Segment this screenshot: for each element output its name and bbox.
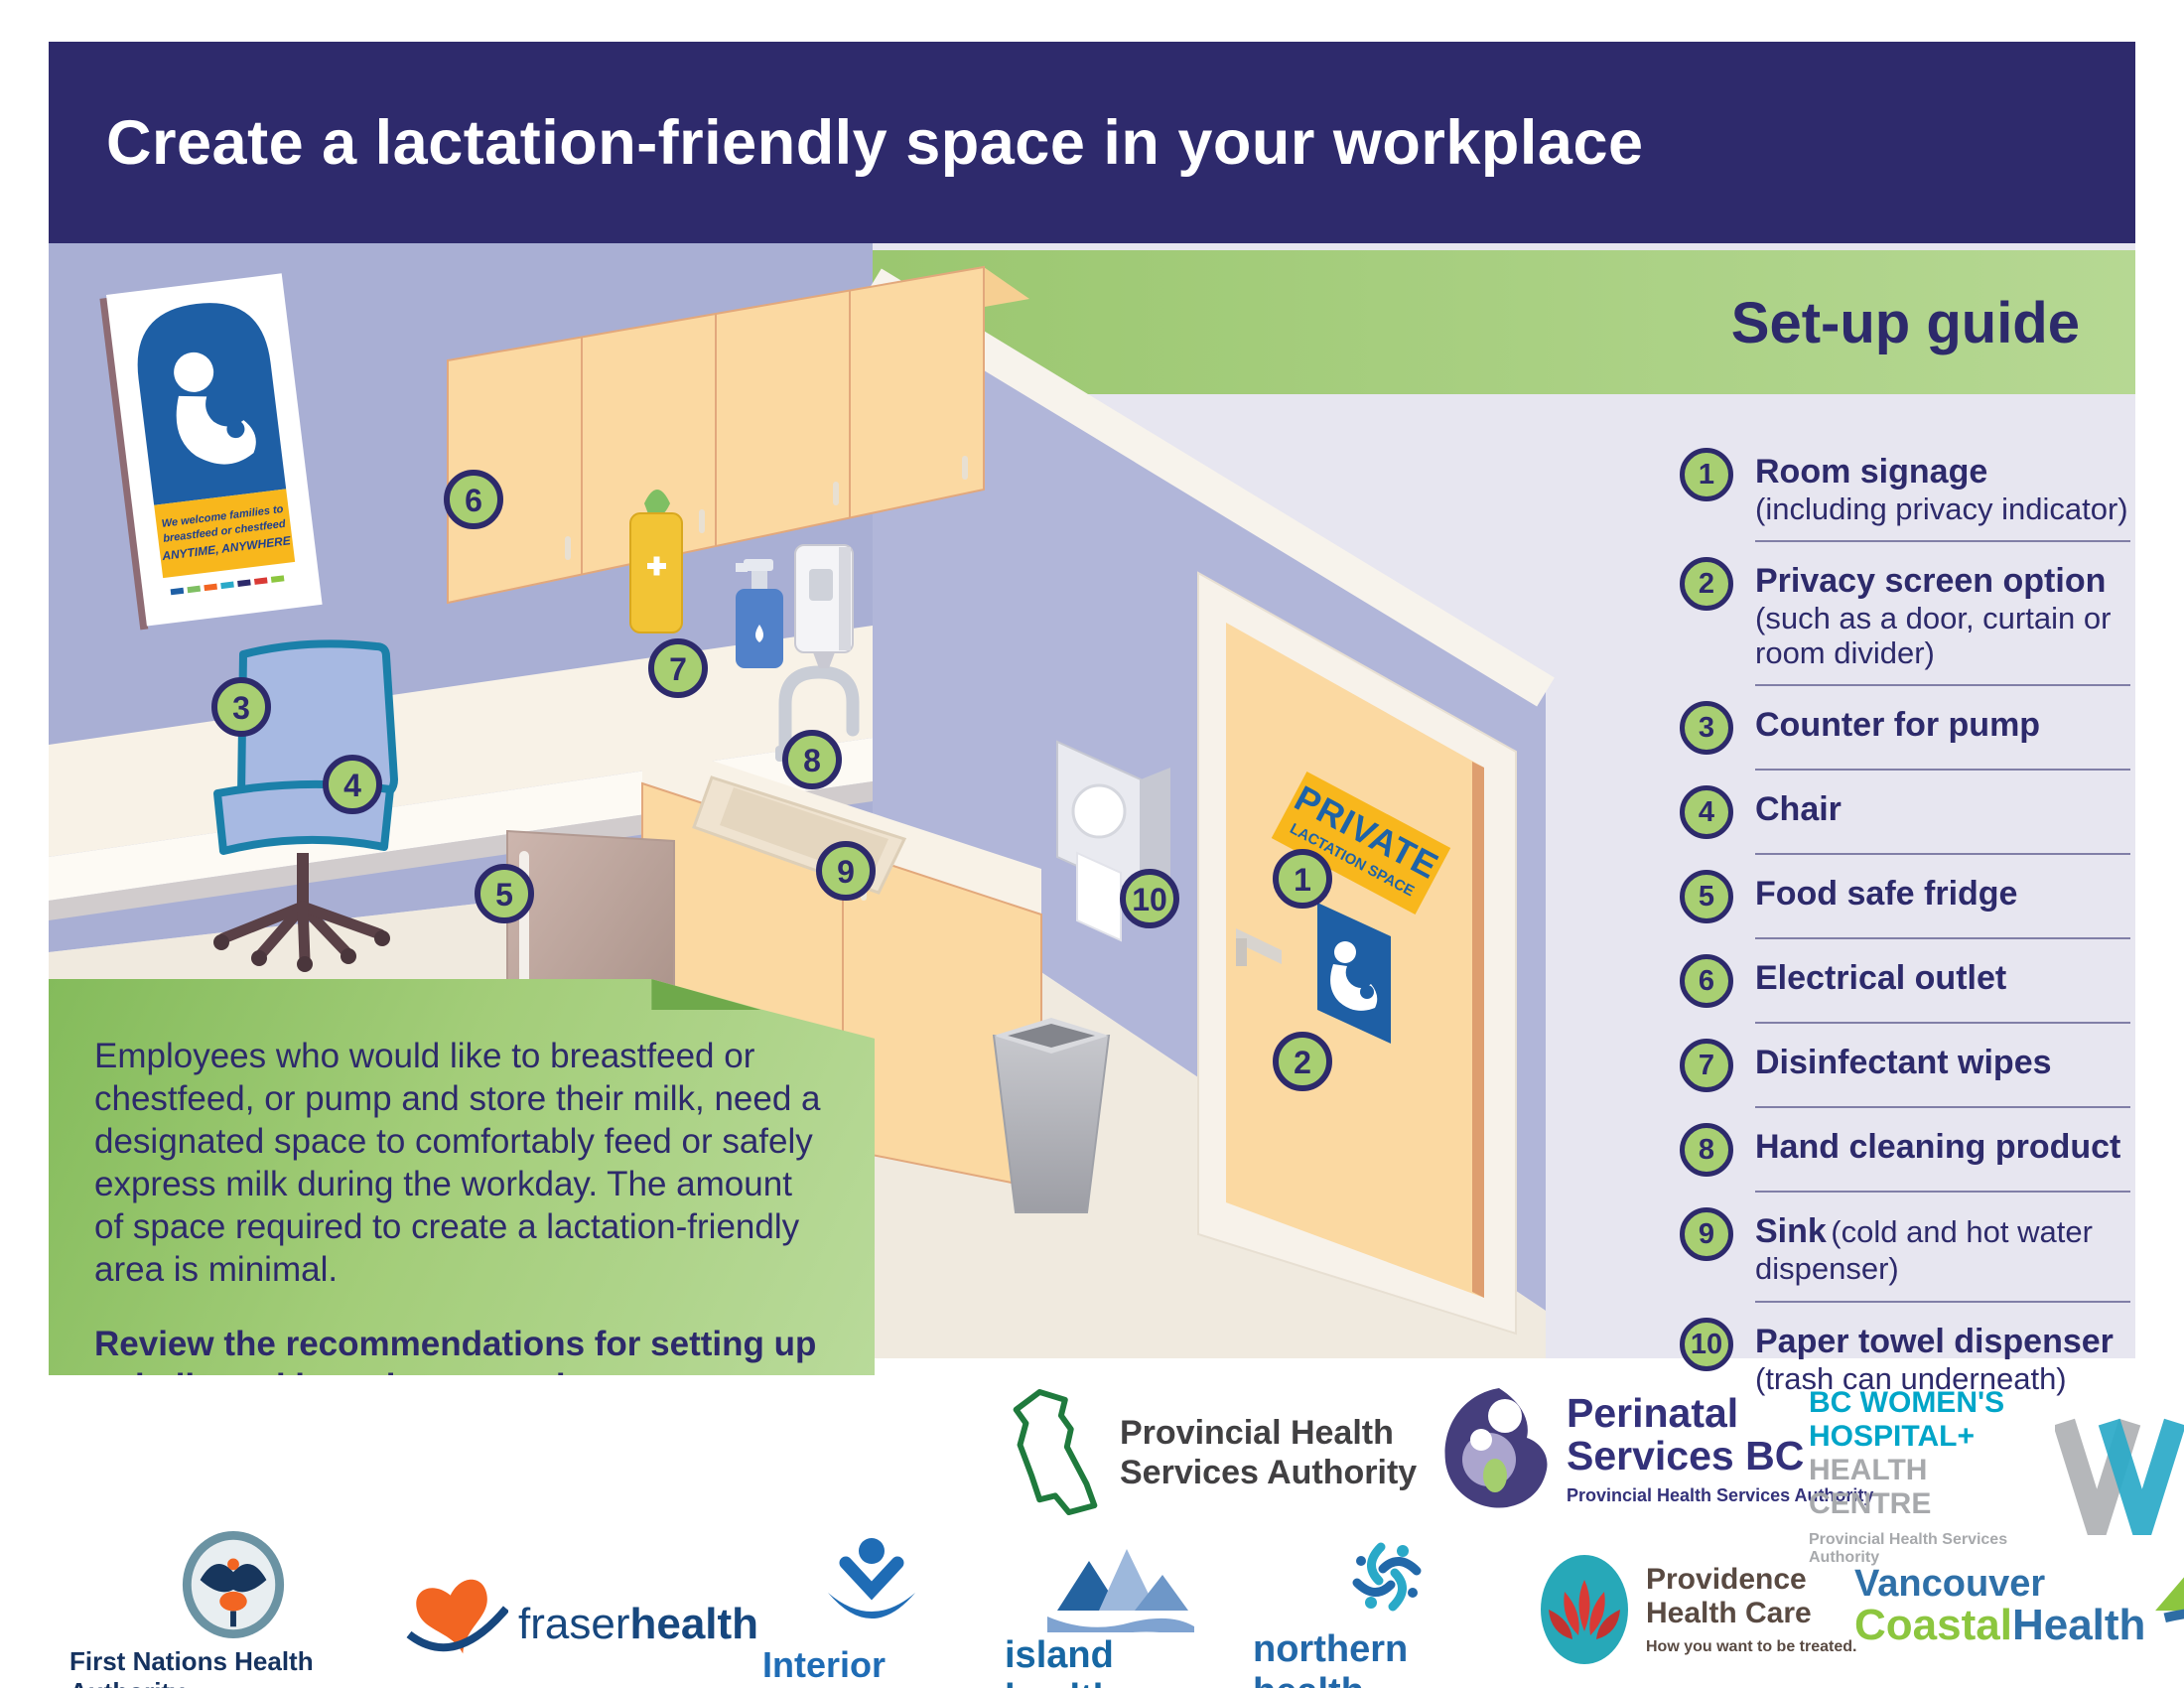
w-mark-icon xyxy=(2055,1418,2184,1535)
svg-text:4: 4 xyxy=(343,768,361,803)
item-label: Privacy screen option xyxy=(1755,562,2106,600)
fnha-icon xyxy=(175,1529,292,1640)
fnha-name: First Nations Health Authority xyxy=(69,1646,397,1688)
svg-text:2: 2 xyxy=(1294,1045,1311,1080)
list-item: 9 Sink (cold and hot water dispenser) xyxy=(1680,1193,2134,1303)
item-number: 1 xyxy=(1680,448,1733,501)
interior-icon xyxy=(814,1533,929,1636)
callout-9: 9 xyxy=(819,844,873,898)
island-health-logo: island health xyxy=(1005,1537,1233,1688)
northern-name: northern health xyxy=(1253,1628,1521,1688)
phsa-logo: Provincial Health Services Authority xyxy=(1005,1388,1417,1517)
perinatal-icon xyxy=(1437,1382,1553,1515)
intro-speech-bubble: Employees who would like to breastfeed o… xyxy=(49,979,875,1375)
item-label: Room signage xyxy=(1755,453,1987,491)
interior-name: Interior Health xyxy=(762,1644,981,1688)
callout-10: 10 xyxy=(1123,872,1176,925)
item-label: Disinfectant wipes xyxy=(1755,1044,2052,1081)
list-item: 5 Food safe fridge xyxy=(1680,855,2134,939)
item-note: (including privacy indicator) xyxy=(1755,492,2134,526)
page-header: Create a lactation-friendly space in you… xyxy=(49,42,2135,243)
item-number: 2 xyxy=(1680,557,1733,611)
fraser-health-logo: fraserhealth xyxy=(405,1573,758,1676)
item-label: Hand cleaning product xyxy=(1755,1128,2120,1166)
svg-text:7: 7 xyxy=(669,651,687,687)
callout-1: 1 xyxy=(1276,852,1329,906)
item-label: Chair xyxy=(1755,790,1842,828)
northern-icon xyxy=(1339,1529,1434,1624)
bubble-callout: Review the recommendations for setting u… xyxy=(94,1323,825,1451)
trash-can xyxy=(994,1018,1109,1212)
svg-text:9: 9 xyxy=(837,854,855,890)
vch-logo: Vancouver CoastalHealth xyxy=(1854,1565,2184,1648)
list-item: 4 Chair xyxy=(1680,771,2134,855)
item-number: 10 xyxy=(1680,1318,1733,1371)
hand-sanitizer-dispenser xyxy=(795,545,853,668)
item-number: 4 xyxy=(1680,785,1733,839)
item-number: 5 xyxy=(1680,870,1733,923)
vch-health: Health xyxy=(2012,1601,2145,1649)
providence-lotus-icon xyxy=(1537,1549,1632,1670)
bc-womens-logo: BC WOMEN'S HOSPITAL+ HEALTH CENTRE Provi… xyxy=(1809,1386,2184,1567)
providence-line2: Health Care xyxy=(1646,1597,1856,1630)
item-number: 3 xyxy=(1680,701,1733,755)
callout-4: 4 xyxy=(326,758,379,811)
item-label: Food safe fridge xyxy=(1755,875,2017,913)
interior-health-logo: Interior Health xyxy=(762,1533,981,1688)
providence-line1: Providence xyxy=(1646,1563,1856,1597)
list-item: 2 Privacy screen option (such as a door,… xyxy=(1680,542,2134,686)
item-label: Paper towel dispenser xyxy=(1755,1323,2114,1360)
setup-guide-list: 1 Room signage (including privacy indica… xyxy=(1680,433,2134,1412)
item-label: Electrical outlet xyxy=(1755,959,2006,997)
item-label: Counter for pump xyxy=(1755,706,2040,744)
svg-text:5: 5 xyxy=(495,877,513,913)
svg-text:3: 3 xyxy=(232,690,250,726)
bc-map-icon xyxy=(1005,1388,1104,1517)
list-item: 8 Hand cleaning product xyxy=(1680,1108,2134,1193)
phsa-line1: Provincial Health xyxy=(1120,1413,1417,1453)
list-item: 7 Disinfectant wipes xyxy=(1680,1024,2134,1108)
svg-text:10: 10 xyxy=(1132,882,1167,917)
list-item: 6 Electrical outlet xyxy=(1680,939,2134,1024)
bcw-line1: BC WOMEN'S xyxy=(1809,1386,2037,1420)
northern-health-logo: northern health the northern way of cari… xyxy=(1253,1529,1521,1688)
island-name: island health xyxy=(1005,1634,1233,1688)
providence-logo: Providence Health Care How you want to b… xyxy=(1537,1549,1856,1670)
list-item: 3 Counter for pump xyxy=(1680,686,2134,771)
svg-text:8: 8 xyxy=(803,743,821,778)
svg-text:6: 6 xyxy=(465,483,482,518)
bcw-line2: HOSPITAL+ xyxy=(1809,1420,2037,1454)
callout-8: 8 xyxy=(785,733,839,786)
bcw-line3: HEALTH CENTRE xyxy=(1809,1454,2037,1521)
callout-3: 3 xyxy=(214,680,268,734)
providence-tagline: How you want to be treated. xyxy=(1646,1638,1856,1656)
vch-mountain-icon xyxy=(2153,1558,2184,1627)
phsa-line2: Services Authority xyxy=(1120,1453,1417,1492)
island-mountains-icon xyxy=(1039,1537,1198,1632)
callout-7: 7 xyxy=(651,641,705,695)
list-item: 1 Room signage (including privacy indica… xyxy=(1680,433,2134,542)
callout-5: 5 xyxy=(478,867,531,920)
item-note: (such as a door, curtain or room divider… xyxy=(1755,601,2134,670)
fraser-heart-icon xyxy=(405,1573,508,1676)
setup-guide-title: Set-up guide xyxy=(1731,291,2080,355)
item-number: 9 xyxy=(1680,1207,1733,1261)
bubble-paragraph: Employees who would like to breastfeed o… xyxy=(94,1035,825,1291)
callout-6: 6 xyxy=(447,473,500,526)
fraser-name2: health xyxy=(629,1600,758,1648)
item-number: 7 xyxy=(1680,1039,1733,1092)
svg-text:1: 1 xyxy=(1294,862,1311,898)
page-title: Create a lactation-friendly space in you… xyxy=(106,107,1644,179)
fraser-name1: fraser xyxy=(518,1600,629,1648)
item-label: Sink xyxy=(1755,1212,1827,1250)
item-number: 8 xyxy=(1680,1123,1733,1177)
fnha-logo: First Nations Health Authority Health th… xyxy=(69,1529,397,1688)
item-number: 6 xyxy=(1680,954,1733,1008)
vch-line1: Vancouver xyxy=(1854,1565,2145,1603)
callout-2: 2 xyxy=(1276,1035,1329,1088)
vch-coastal: Coastal xyxy=(1854,1601,2012,1649)
infographic-poster: Create a lactation-friendly space in you… xyxy=(0,0,2184,1688)
